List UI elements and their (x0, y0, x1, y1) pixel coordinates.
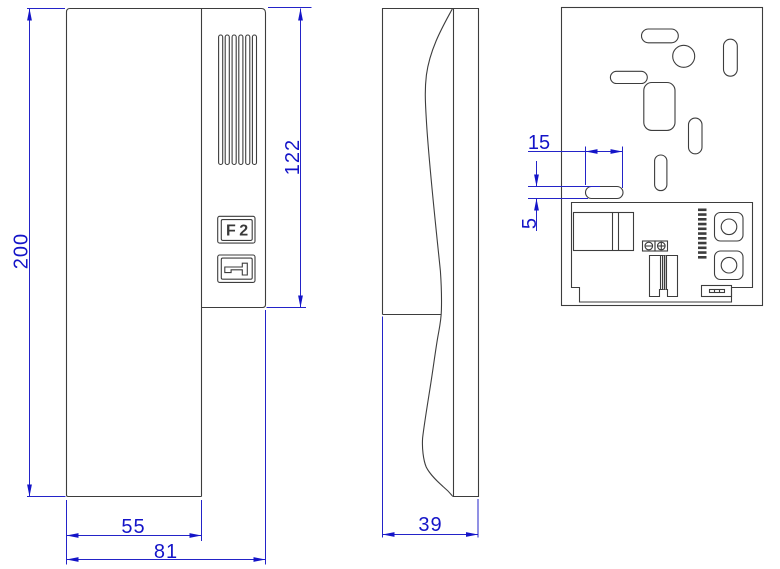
svg-text:15: 15 (528, 132, 550, 154)
svg-text:122: 122 (282, 139, 304, 175)
svg-text:55: 55 (121, 516, 145, 538)
svg-text:81: 81 (154, 541, 178, 563)
svg-text:5: 5 (519, 218, 541, 229)
svg-text:F 2: F 2 (226, 223, 248, 240)
svg-text:39: 39 (418, 514, 442, 536)
svg-text:200: 200 (11, 233, 33, 269)
